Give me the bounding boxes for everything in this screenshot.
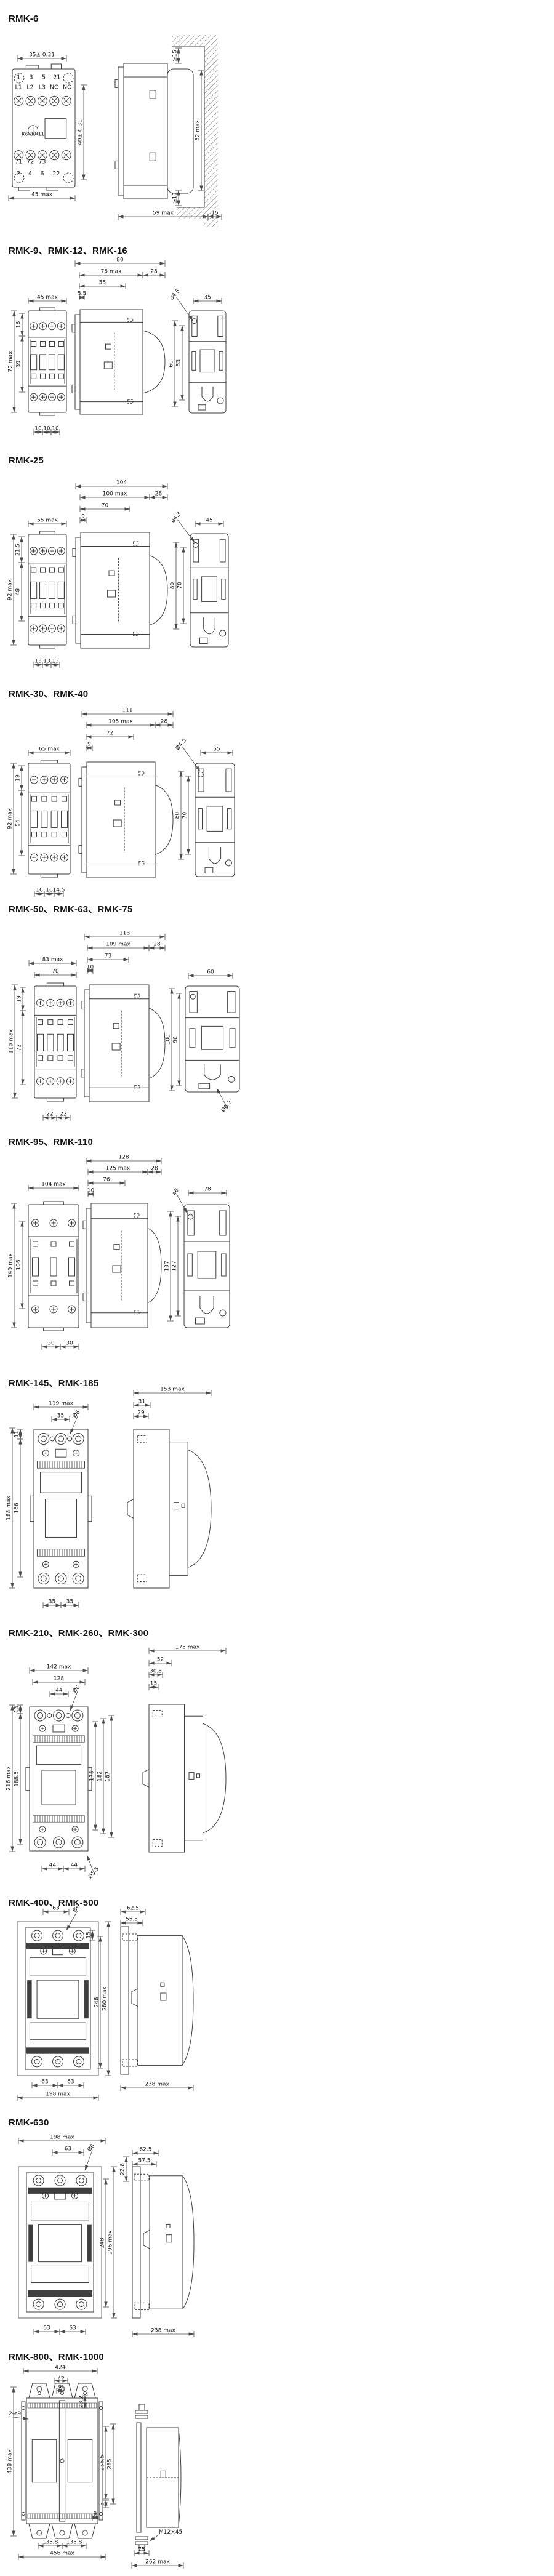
dim-label: Ø6 <box>71 1409 82 1419</box>
front-view <box>26 1707 92 1851</box>
dim-label: 16 <box>46 888 53 894</box>
dim-label: 55.5 <box>126 1917 138 1923</box>
dim-label: 3 <box>100 2502 106 2506</box>
dim-label: 14.5 <box>52 888 65 894</box>
dim-label: 30 <box>47 1341 55 1347</box>
dim-label: 28 <box>155 491 163 497</box>
dim-label: 153 max <box>160 1387 185 1393</box>
dim-label: 31 <box>138 1399 145 1405</box>
dim-label: 59 max <box>153 211 174 217</box>
dim-label: 70 <box>102 503 109 509</box>
dim-label: 5.5 <box>78 291 86 297</box>
dim-label: 119 max <box>49 1401 73 1407</box>
section-rmk-210-260-300-drawing: 142 max12844Ø6216 max13188.5178182187444… <box>6 1645 227 1880</box>
dim-label: 19 <box>17 995 23 1003</box>
section-rmk-400-500-drawing: 63Ø615248280 max6363198 max62.555.5238 m… <box>17 1903 193 2101</box>
dim-label: 15 <box>86 1932 92 1938</box>
dim-label: 104 max <box>41 1182 66 1188</box>
dim-label: 16 <box>16 321 22 329</box>
terminal-label: K6-30-11 <box>22 131 44 137</box>
dim-label: 198 max <box>46 2092 70 2098</box>
dim-label: 22 <box>46 1112 53 1118</box>
dim-label: 166 <box>14 1503 20 1513</box>
front-view <box>17 1922 98 2076</box>
dim-label: 13 <box>52 659 58 665</box>
dim-label: 35± 0.31 <box>29 52 55 58</box>
dim-label: 9 <box>81 514 85 520</box>
dim-label: 63 <box>41 2079 48 2085</box>
dim-label: 142 max <box>47 1664 71 1671</box>
dim-label: 60 <box>207 969 214 976</box>
side-view <box>83 1203 161 1328</box>
technical-drawing-canvas: 35± 0.3140± 0.3145 max≥1552 max≥1559 max… <box>0 0 554 2576</box>
section-rmk-6-drawing: 35± 0.3140± 0.3145 max≥1552 max≥1559 max… <box>9 35 222 227</box>
terminal-label: 22 <box>52 171 60 177</box>
dim-label: ø4.5 <box>169 288 181 302</box>
dim-label: 296 max <box>108 2230 114 2255</box>
dim-label: 73 <box>105 953 111 960</box>
dim-label: 9 <box>87 742 91 748</box>
dim-label: 187 <box>105 1771 111 1781</box>
dim-label: 80 <box>116 257 124 263</box>
dim-label: Ø5.5 <box>87 1866 100 1880</box>
dim-label: 44 <box>49 1863 57 1869</box>
dim-label: 9 <box>94 2511 97 2518</box>
dim-label: 70 <box>182 812 188 819</box>
dim-label: 57.5 <box>138 2158 150 2164</box>
terminal-label: NC <box>50 84 58 91</box>
side-view <box>143 1704 226 1852</box>
terminal-label: 6 <box>40 171 44 177</box>
section-rmk-9-12-16-drawing: 45 max72 max16391010108076 max28555.5ø4.… <box>8 257 227 436</box>
dim-label: Ø6 <box>86 2143 97 2153</box>
side-view <box>72 310 165 414</box>
terminal-label: 5 <box>42 74 46 81</box>
dim-label: 70 <box>52 969 59 975</box>
dim-label: 188 max <box>6 1496 12 1520</box>
dim-label: Ø6.2 <box>220 1099 233 1113</box>
terminal-label: NO <box>63 84 72 91</box>
section-rmk-630-drawing: 198 max63Ø622.8248296 max636362.557.5238… <box>18 2135 194 2338</box>
dim-label: 72 <box>106 731 113 737</box>
dim-label: 63 <box>67 2079 74 2085</box>
dim-label: 22.8 <box>120 2163 126 2175</box>
terminal-label: 73 <box>38 159 46 166</box>
dim-label: 280 max <box>102 1986 108 2011</box>
dim-label: 28 <box>150 269 158 275</box>
dim-label: 30 <box>66 1341 73 1347</box>
dim-label: 35 <box>57 1413 64 1419</box>
side-view <box>79 762 173 878</box>
front-view <box>34 983 76 1101</box>
dim-label: 109 max <box>106 942 130 948</box>
dim-label: 128 <box>54 1676 64 1682</box>
dim-label: 16 <box>36 888 43 894</box>
section-rmk-95-110-drawing: 104 max149 max1063030128125 max287610ø67… <box>8 1155 230 1350</box>
dim-label: 19 <box>15 774 22 782</box>
dim-label: 78 <box>204 1187 211 1193</box>
dim-label: 52 <box>157 1657 164 1663</box>
catalog-page: RMK-6 RMK-9、RMK-12、RMK-16 RMK-25 RMK-30、… <box>0 0 554 2576</box>
dim-label: 285 <box>107 2458 113 2469</box>
dim-label: 135.8 <box>66 2540 82 2546</box>
dim-label: 13 <box>43 659 50 665</box>
dim-label: 127 <box>172 1261 178 1271</box>
dim-label: 10 <box>34 426 42 432</box>
front-view <box>28 1202 79 1331</box>
front-view <box>22 2383 103 2538</box>
dim-label: 44 <box>71 1863 78 1869</box>
dim-label: 63 <box>52 1906 59 1912</box>
terminal-label: 71 <box>15 159 22 166</box>
dim-label: 178 <box>89 1770 95 1781</box>
dim-label: 76 <box>57 2375 65 2381</box>
terminal-label: 3 <box>30 74 33 81</box>
dim-label: 135.8 <box>42 2540 58 2546</box>
dim-label: 10 <box>87 1188 95 1194</box>
dim-label: M12×45 <box>159 2529 182 2535</box>
dim-label: ø6 <box>171 1187 180 1197</box>
dim-label: 182 <box>97 1771 103 1781</box>
dim-label: 23.2 <box>79 2396 85 2408</box>
terminal-label: L3 <box>39 84 46 91</box>
section-rmk-800-1000-drawing: 424763023.22-ø9438 max256.528539135.8135… <box>7 2365 184 2569</box>
front-view <box>30 1429 92 1588</box>
dim-label: 438 max <box>7 2449 14 2474</box>
dim-label: 198 max <box>50 2135 74 2141</box>
dim-label: 53 <box>176 359 182 366</box>
dim-label: 137 <box>164 1261 171 1271</box>
terminal-label: 72 <box>26 159 34 166</box>
dim-label: 55 <box>99 280 106 286</box>
dim-label: 63 <box>65 2146 71 2153</box>
dim-label: 2-ø9 <box>9 2411 21 2417</box>
dim-label: 72 <box>17 1044 23 1051</box>
dim-label: 70 <box>177 582 183 589</box>
dim-label: 248 <box>100 2237 106 2248</box>
rear-view <box>190 534 228 647</box>
front-view <box>28 308 66 415</box>
dim-label: 15 <box>211 211 218 217</box>
dim-label: 111 <box>122 708 132 714</box>
dim-label: 63 <box>69 2325 76 2332</box>
dim-label: 44 <box>55 1688 63 1694</box>
front-view <box>18 2167 102 2318</box>
side-view <box>132 2167 194 2318</box>
dim-label: 75 <box>138 2547 145 2553</box>
section-rmk-50-63-75-drawing: 83 max70110 max19722222113109 max2873106… <box>9 931 240 1121</box>
dim-label: 104 <box>116 480 127 486</box>
terminal-label: L2 <box>26 84 33 91</box>
dim-label: 55 max <box>37 518 58 524</box>
dim-label: 105 max <box>108 719 133 725</box>
dim-label: 216 max <box>6 1766 12 1791</box>
dim-label: 52 max <box>195 119 201 141</box>
dim-label: 76 max <box>101 269 122 275</box>
dim-label: 15 <box>150 1681 157 1687</box>
dim-label: 62.5 <box>139 2147 151 2153</box>
dim-label: 30.5 <box>150 1669 162 1675</box>
dim-label: 55 <box>213 747 220 753</box>
dim-label: 10 <box>87 965 94 971</box>
dim-label: 35 <box>66 1599 73 1605</box>
dim-label: 62.5 <box>127 1906 139 1912</box>
dim-label: Ø6 <box>71 1903 82 1914</box>
terminal-label: 1 <box>17 74 20 81</box>
side-view <box>127 1429 211 1588</box>
dim-label: 28 <box>151 1166 158 1172</box>
dim-label: 48 <box>15 588 22 596</box>
dim-label: 100 <box>166 1034 172 1045</box>
section-rmk-30-40-drawing: 65 max92 max1954161614.5111105 max28729Ø… <box>7 708 235 897</box>
dim-label: 22 <box>60 1112 66 1118</box>
dim-label: 28 <box>153 942 161 948</box>
terminal-label: 4 <box>28 171 32 177</box>
dim-label: ø4.3 <box>170 511 182 524</box>
dim-label: 76 <box>103 1177 110 1183</box>
dim-label: 10 <box>52 426 59 432</box>
dim-label: 256.5 <box>100 2455 106 2471</box>
dim-label: 424 <box>55 2365 65 2371</box>
dim-label: 45 max <box>31 192 53 198</box>
dim-label: 125 max <box>106 1166 130 1172</box>
dim-label: 175 max <box>175 1645 200 1651</box>
dim-label: 21.5 <box>15 544 22 556</box>
dim-label: 39 <box>16 361 22 368</box>
dim-label: 110 max <box>9 1029 15 1054</box>
dim-label: 54 <box>15 819 22 827</box>
section-rmk-145-185-drawing: 119 max35Ø6188 max111663535153 max3129 <box>6 1387 212 1609</box>
front-view <box>28 760 70 877</box>
side-view <box>73 532 167 648</box>
dim-label: 35 <box>49 1599 55 1605</box>
terminal-label: 2 <box>17 171 20 177</box>
dim-label: 113 <box>119 931 130 937</box>
dim-label: 11 <box>14 1430 20 1437</box>
dim-label: 456 max <box>50 2551 74 2557</box>
rear-view <box>185 986 239 1092</box>
dim-label: 10 <box>43 426 50 432</box>
dim-label: 40± 0.31 <box>78 119 84 145</box>
dim-label: 92 max <box>7 808 14 829</box>
side-view <box>115 35 218 227</box>
dim-label: 45 <box>206 518 212 524</box>
dim-label: 90 <box>173 1036 179 1043</box>
dim-label: 35 <box>204 295 211 301</box>
dim-label: 65 max <box>39 747 60 753</box>
dim-label: 106 <box>16 1259 22 1270</box>
dim-label: 13 <box>34 659 41 665</box>
rear-view <box>184 1205 230 1328</box>
terminal-label: 21 <box>53 74 60 81</box>
dim-label: 238 max <box>145 2082 169 2088</box>
dim-label: 188.5 <box>14 1771 20 1787</box>
dim-label: 72 max <box>8 351 14 372</box>
section-rmk-25-drawing: 55 max92 max21.548131313104100 max28709ø… <box>7 480 229 668</box>
side-view <box>81 985 165 1102</box>
dim-label: 128 <box>118 1155 129 1161</box>
dim-label: 80 <box>170 582 176 590</box>
rear-view <box>195 763 235 877</box>
terminal-label: L1 <box>15 84 22 91</box>
front-view <box>28 531 66 648</box>
dim-label: 248 <box>94 1997 100 2007</box>
dim-label: Ø4.5 <box>174 737 188 752</box>
dim-label: 80 <box>175 812 181 819</box>
side-view <box>121 1927 193 2074</box>
dim-label: 28 <box>161 719 168 725</box>
dim-label: 60 <box>169 360 175 367</box>
dim-label: 29 <box>137 1410 145 1416</box>
rear-view <box>189 311 226 413</box>
dim-label: Ø6 <box>71 1684 82 1695</box>
dim-label: 63 <box>43 2325 50 2332</box>
dim-label: 83 max <box>42 957 64 963</box>
dim-label: 45 max <box>37 295 58 301</box>
dim-label: 238 max <box>151 2328 175 2334</box>
dim-label: 262 max <box>145 2559 170 2566</box>
dim-label: 13 <box>14 1706 20 1712</box>
dim-label: ≥15 <box>172 192 179 204</box>
dim-label: 149 max <box>8 1253 14 1278</box>
dim-label: ≥15 <box>172 50 179 62</box>
dim-label: 100 max <box>103 491 127 497</box>
dim-label: 92 max <box>7 579 14 600</box>
dim-label: 30 <box>57 2385 64 2391</box>
